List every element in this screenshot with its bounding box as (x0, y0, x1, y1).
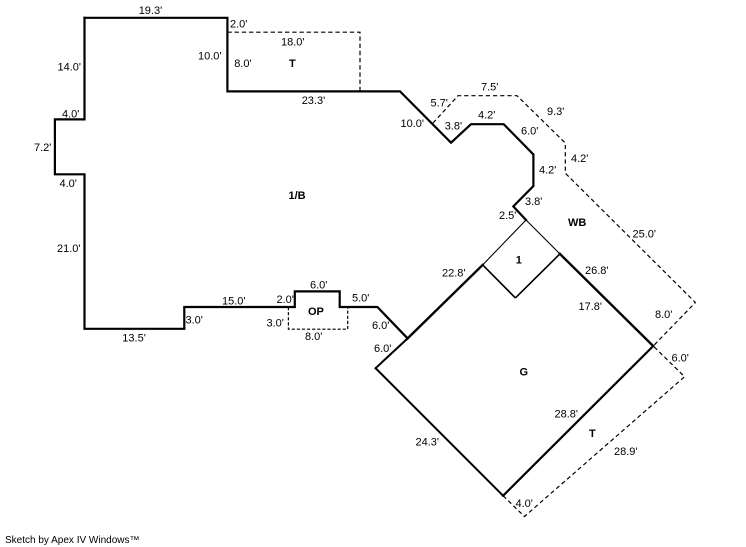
svg-text:5.7': 5.7' (431, 98, 448, 110)
svg-text:4.2': 4.2' (571, 153, 588, 165)
svg-text:6.0': 6.0' (374, 343, 391, 355)
svg-text:14.0': 14.0' (58, 61, 82, 73)
svg-text:6.0': 6.0' (310, 280, 327, 292)
svg-text:7.5': 7.5' (481, 82, 498, 94)
svg-text:3.0': 3.0' (267, 318, 284, 330)
svg-text:9.3': 9.3' (547, 106, 564, 118)
svg-text:1/B: 1/B (289, 190, 306, 202)
svg-text:4.0': 4.0' (516, 498, 533, 510)
svg-text:4.0': 4.0' (62, 109, 79, 121)
svg-text:3.0': 3.0' (186, 315, 203, 327)
svg-text:19.3': 19.3' (139, 5, 163, 17)
svg-text:28.8': 28.8' (555, 409, 579, 421)
svg-text:7.2': 7.2' (34, 142, 51, 154)
svg-text:2.0': 2.0' (277, 294, 294, 306)
svg-text:17.8': 17.8' (579, 301, 603, 313)
svg-text:15.0': 15.0' (222, 296, 246, 308)
svg-text:24.3': 24.3' (416, 437, 440, 449)
svg-text:10.0': 10.0' (401, 118, 425, 130)
svg-text:WB: WB (568, 217, 586, 229)
svg-text:8.0': 8.0' (305, 331, 322, 343)
svg-text:10.0': 10.0' (198, 51, 222, 63)
svg-text:6.0': 6.0' (521, 126, 538, 138)
svg-text:3.8': 3.8' (525, 196, 542, 208)
svg-text:G: G (520, 367, 529, 379)
svg-text:25.0': 25.0' (633, 229, 657, 241)
svg-text:T: T (589, 428, 596, 440)
svg-text:4.0': 4.0' (60, 178, 77, 190)
svg-text:6.0': 6.0' (672, 353, 689, 365)
svg-text:8.0': 8.0' (655, 309, 672, 321)
svg-text:2.5': 2.5' (499, 210, 516, 222)
svg-text:23.3': 23.3' (302, 95, 326, 107)
svg-text:1: 1 (516, 255, 522, 267)
svg-text:2.0': 2.0' (230, 18, 247, 30)
svg-text:4.2': 4.2' (478, 110, 495, 122)
svg-text:18.0': 18.0' (281, 37, 305, 49)
svg-text:26.8': 26.8' (585, 265, 609, 277)
svg-text:21.0': 21.0' (57, 243, 81, 255)
svg-text:22.8': 22.8' (442, 268, 466, 280)
svg-text:8.0': 8.0' (234, 58, 251, 70)
svg-text:Sketch by Apex IV Windows™: Sketch by Apex IV Windows™ (5, 535, 140, 546)
svg-text:13.5': 13.5' (122, 333, 146, 345)
svg-text:4.2': 4.2' (539, 165, 556, 177)
svg-text:5.0': 5.0' (352, 293, 369, 305)
svg-text:3.8': 3.8' (445, 121, 462, 133)
svg-text:T: T (289, 58, 296, 70)
svg-text:6.0': 6.0' (372, 320, 389, 332)
svg-text:28.9': 28.9' (614, 446, 638, 458)
svg-text:OP: OP (308, 306, 324, 318)
